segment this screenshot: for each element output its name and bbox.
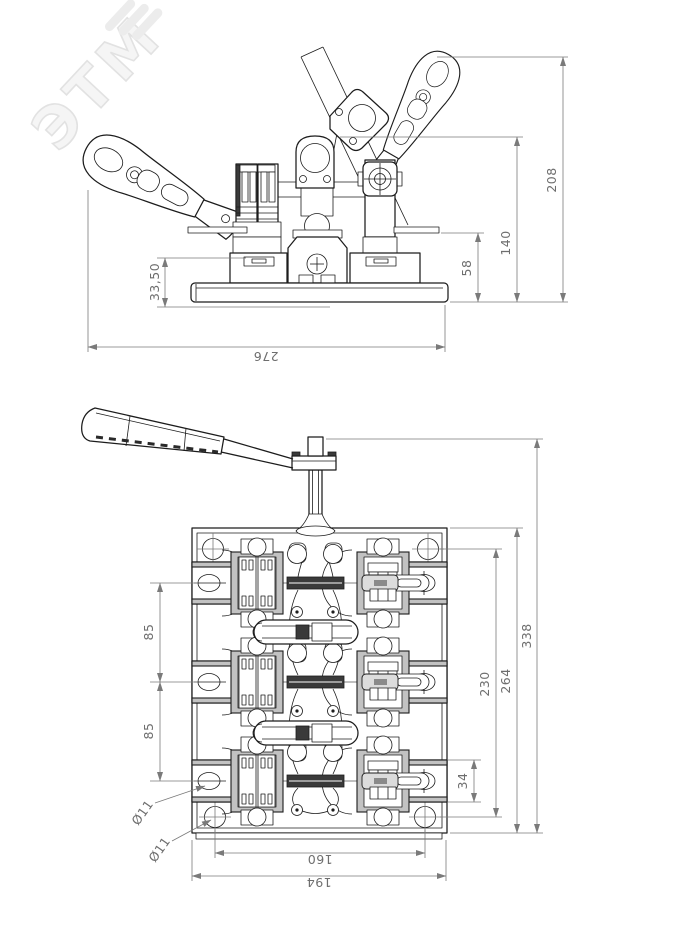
- side-view: 33,50 58 140 208 276: [75, 43, 568, 364]
- dim-label: 194: [306, 875, 331, 890]
- plan-view: 85 85 Ø11 Ø11 34 230: [82, 408, 543, 890]
- plan-handle: [82, 408, 293, 468]
- contact-stack: [233, 164, 281, 237]
- dim-label: 33,50: [147, 263, 162, 301]
- drive-shaft: [292, 437, 336, 536]
- dimension-pole-pitch-1: 85: [141, 583, 198, 682]
- dim-label: 264: [498, 668, 513, 693]
- drawing-sheet: ЭТМ: [0, 0, 684, 937]
- dim-label: 230: [477, 671, 492, 696]
- insulator-blocks: [230, 230, 420, 283]
- dimension-overall-height: 208: [437, 57, 568, 302]
- dim-label: 85: [141, 723, 156, 740]
- dim-label: 140: [498, 230, 513, 255]
- dim-label: 338: [519, 623, 534, 648]
- dim-label: 208: [544, 167, 559, 192]
- pivot-pillar: [358, 160, 402, 237]
- center-bracket: [296, 136, 334, 239]
- base-plate: [191, 283, 448, 302]
- upper-link-bracket: [330, 90, 389, 151]
- dim-label: 58: [459, 260, 474, 277]
- coupler-bar-2: [253, 721, 358, 745]
- dimension-tab-height: 34: [448, 760, 481, 802]
- left-flange: [188, 227, 247, 233]
- dimension-hole-span-v: 230: [440, 549, 502, 817]
- dim-label: 85: [141, 624, 156, 641]
- technical-drawing: ЭТМ: [0, 0, 684, 937]
- dim-label: 276: [253, 349, 278, 364]
- dim-label: 160: [307, 852, 332, 867]
- right-flange: [394, 227, 439, 233]
- dim-label: Ø11: [145, 834, 173, 865]
- coupler-bar-1: [253, 620, 358, 644]
- dim-label: 34: [455, 773, 470, 790]
- dim-label: Ø11: [128, 797, 156, 828]
- dimension-pole-pitch-2: 85: [141, 682, 198, 781]
